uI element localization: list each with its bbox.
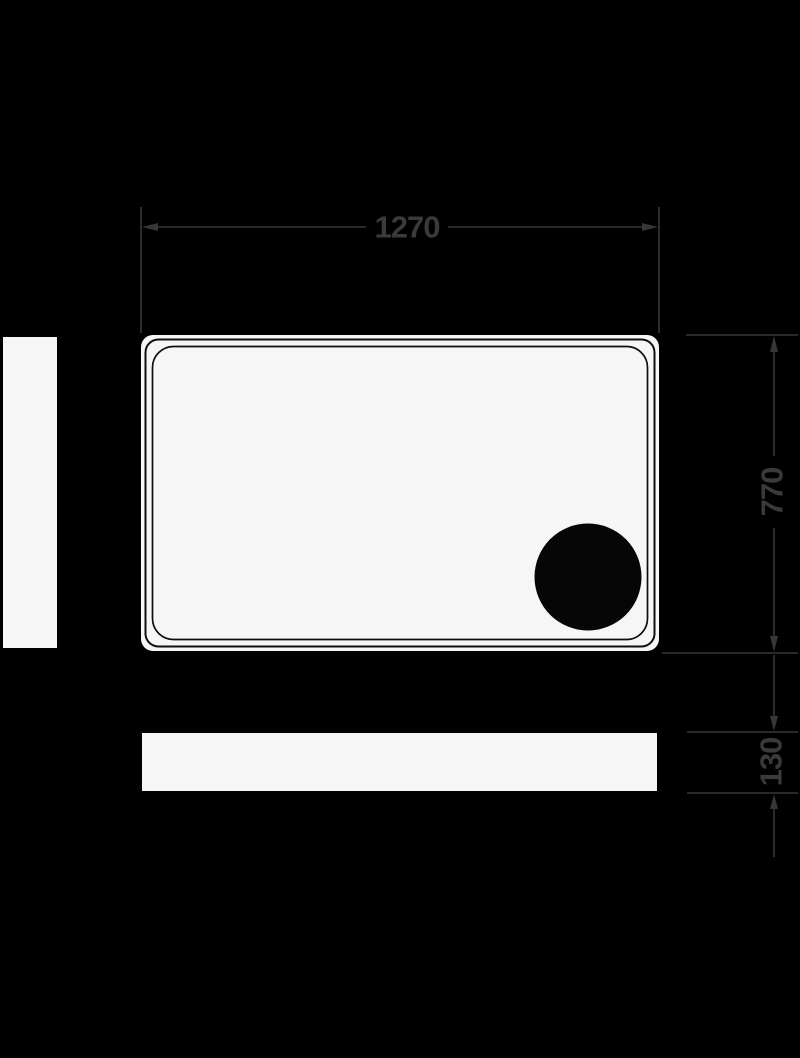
dim-depth-arrow-up-icon [770, 336, 778, 352]
side-panel-view [3, 337, 57, 648]
dim-width-arrow-right-icon [642, 223, 658, 231]
front-apron-view [142, 733, 657, 791]
dim-depth-label: 770 [755, 468, 790, 517]
dim-height: 130 [687, 655, 798, 857]
dim-depth: 770 [662, 335, 798, 653]
dim-depth-arrow-down-icon [770, 636, 778, 652]
dim-width: 1270 [141, 207, 659, 333]
dim-width-arrow-left-icon [142, 223, 158, 231]
technical-drawing-svg: 1270 770 130 [0, 0, 800, 1058]
dim-width-label: 1270 [375, 210, 440, 245]
dim-height-label: 130 [754, 738, 789, 787]
dim-height-arrow-down-icon [770, 716, 778, 731]
drain-circle [535, 524, 642, 631]
dim-height-arrow-up-icon [770, 794, 778, 809]
drawing-canvas: 1270 770 130 [0, 0, 800, 1058]
tray-plan-view [141, 335, 659, 651]
